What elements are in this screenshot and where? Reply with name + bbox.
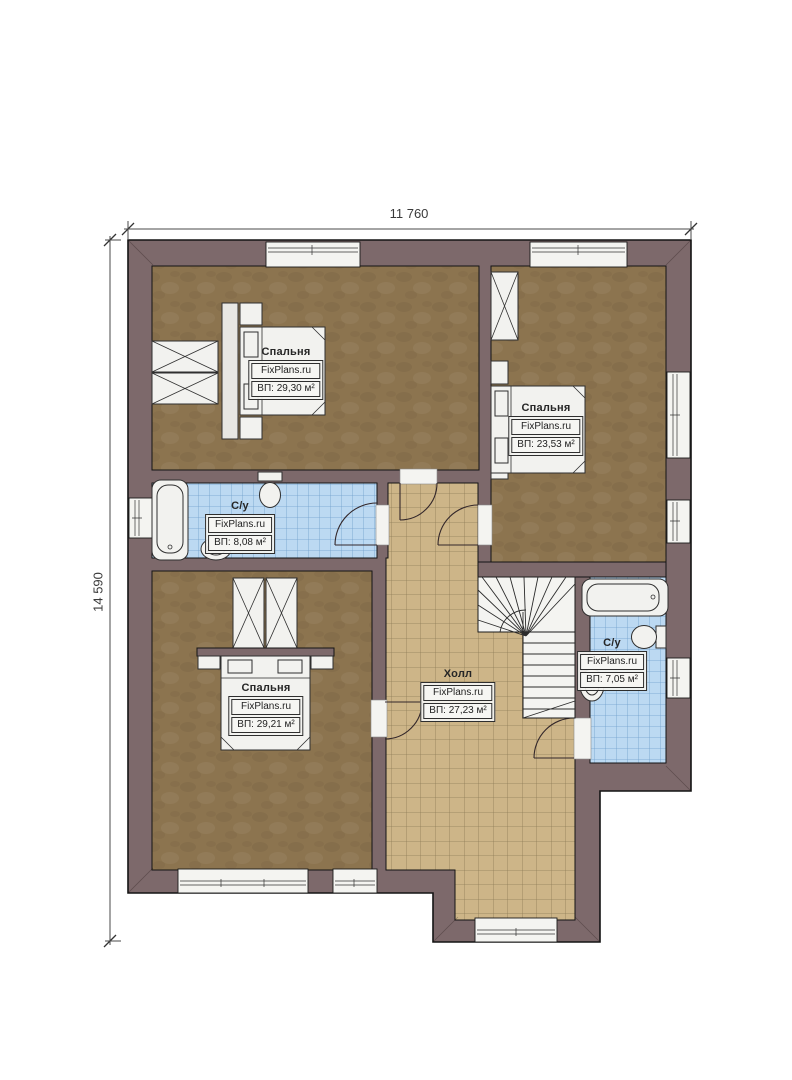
room-label-bedroom-top-left: Спальня FixPlans.ru ВП: 29,30 м²: [248, 346, 323, 400]
room-info-box: FixPlans.ru ВП: 7,05 м²: [577, 651, 647, 691]
bathtub-icon: [157, 485, 183, 553]
toilet-icon: [656, 626, 666, 648]
dimension-height-label: 14 590: [91, 572, 106, 612]
watermark: FixPlans.ru: [251, 363, 320, 379]
pillow-icon: [228, 660, 252, 673]
watermark: FixPlans.ru: [231, 699, 300, 715]
watermark: FixPlans.ru: [580, 654, 644, 670]
console-shelf: [197, 648, 334, 656]
pillow-icon: [495, 391, 508, 416]
bathtub-icon: [587, 584, 659, 611]
room-name: Спальня: [248, 346, 323, 358]
room-info-box: FixPlans.ru ВП: 29,30 м²: [248, 360, 323, 400]
room-label-bedroom-top-right: Спальня FixPlans.ru ВП: 23,53 м²: [508, 402, 583, 456]
floor-plan-drawing: [0, 0, 792, 1080]
partition-wall: [222, 303, 238, 439]
room-label-bathroom-left: С/у FixPlans.ru ВП: 8,08 м²: [205, 500, 275, 554]
room-area: ВП: 29,21 м²: [231, 717, 300, 733]
room-area: ВП: 7,05 м²: [580, 672, 644, 688]
room-name: Холл: [420, 668, 495, 680]
room-label-bedroom-bottom-left: Спальня FixPlans.ru ВП: 29,21 м²: [228, 682, 303, 736]
room-area: ВП: 8,08 м²: [208, 535, 272, 551]
room-name: Спальня: [228, 682, 303, 694]
room-name: С/у: [577, 637, 647, 649]
room-area: ВП: 27,23 м²: [423, 703, 492, 719]
room-info-box: FixPlans.ru ВП: 27,23 м²: [420, 682, 495, 722]
toilet-icon: [258, 472, 282, 481]
watermark: FixPlans.ru: [208, 517, 272, 533]
nightstand-icon: [198, 656, 220, 669]
room-info-box: FixPlans.ru ВП: 23,53 м²: [508, 416, 583, 456]
watermark: FixPlans.ru: [423, 685, 492, 701]
room-info-box: FixPlans.ru ВП: 8,08 м²: [205, 514, 275, 554]
room-area: ВП: 23,53 м²: [511, 437, 580, 453]
nightstand-icon: [491, 361, 508, 384]
watermark: FixPlans.ru: [511, 419, 580, 435]
window: [530, 242, 627, 267]
room-name: Спальня: [508, 402, 583, 414]
nightstand-icon: [311, 656, 333, 669]
pillow-icon: [495, 438, 508, 463]
nightstand-icon: [240, 303, 262, 325]
nightstand-icon: [240, 417, 262, 439]
dimension-width-label: 11 760: [390, 206, 429, 221]
room-area: ВП: 29,30 м²: [251, 381, 320, 397]
room-label-bathroom-right: С/у FixPlans.ru ВП: 7,05 м²: [577, 637, 647, 691]
window: [667, 500, 690, 543]
room-name: С/у: [205, 500, 275, 512]
floor-plan: 11 760 14 590 Спальня FixPlans.ru ВП: 29…: [0, 0, 792, 1080]
window: [266, 242, 360, 267]
room-info-box: FixPlans.ru ВП: 29,21 м²: [228, 696, 303, 736]
pillow-icon: [278, 660, 302, 673]
room-label-hall: Холл FixPlans.ru ВП: 27,23 м²: [420, 668, 495, 722]
